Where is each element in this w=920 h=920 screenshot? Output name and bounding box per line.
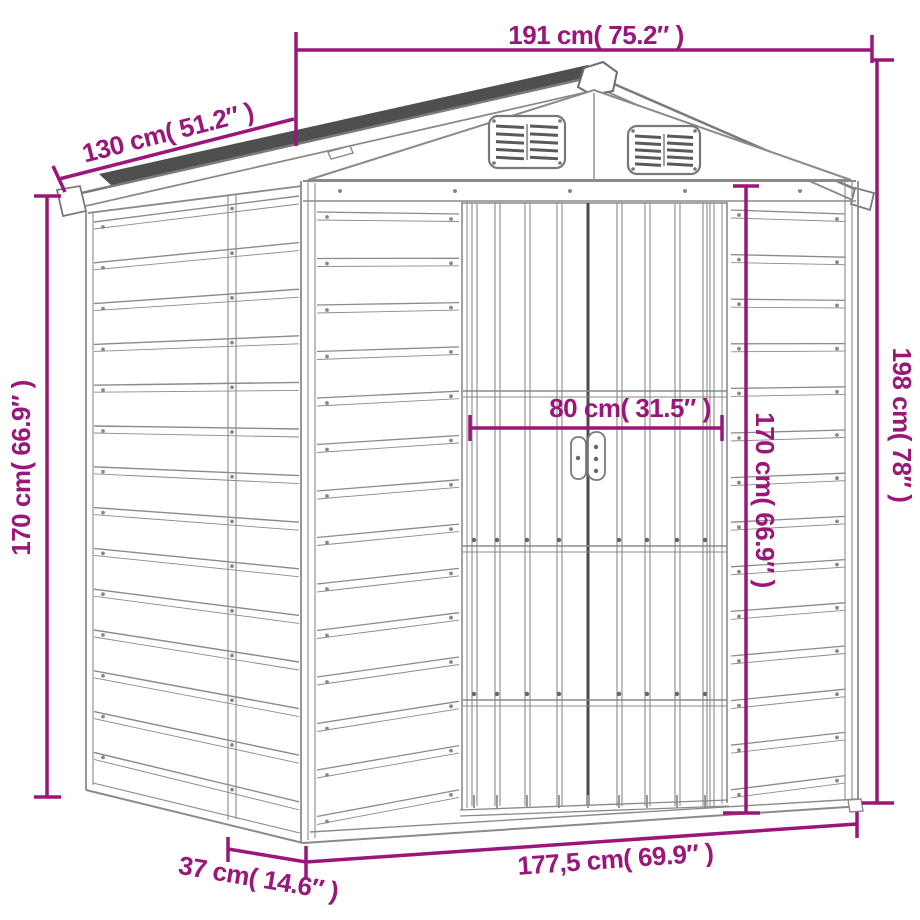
door-corrugation xyxy=(463,203,727,808)
header-screws xyxy=(338,189,802,193)
dim-wall-height-front: 170 cm( 66.9″ ) xyxy=(723,186,780,814)
front-right-panel xyxy=(731,210,845,798)
dim-wall-height-front-label: 170 cm( 66.9″ ) xyxy=(750,412,780,588)
dim-door-width-label: 80 cm( 31.5″ ) xyxy=(549,393,711,423)
dim-base-width: 177,5 cm( 69.9″ ) xyxy=(306,812,857,881)
dim-wall-height-left: 170 cm( 66.9″ ) xyxy=(6,196,61,797)
dim-base-depth: 37 cm( 14.6″ ) xyxy=(176,837,340,906)
dim-total-height-label: 198 cm( 78″ ) xyxy=(887,348,917,503)
roof-right-endcap xyxy=(851,188,874,210)
roof-left-endcap xyxy=(57,186,86,216)
door-handle xyxy=(571,432,605,480)
dim-wall-height-left-label: 170 cm( 66.9″ ) xyxy=(6,380,36,556)
double-doors xyxy=(462,202,727,810)
roof-bracket xyxy=(328,146,353,159)
gable xyxy=(303,90,856,201)
diagram-canvas: 191 cm( 75.2″ ) 130 cm( 51.2″ ) 170 cm( … xyxy=(0,0,920,920)
shed-dimension-diagram: 191 cm( 75.2″ ) 130 cm( 51.2″ ) 170 cm( … xyxy=(0,0,920,920)
dim-base-depth-label: 37 cm( 14.6″ ) xyxy=(176,850,340,906)
base xyxy=(303,799,863,843)
side-wall xyxy=(86,186,303,843)
side-wall-panels xyxy=(94,196,299,810)
dim-total-height: 198 cm( 78″ ) xyxy=(862,60,917,803)
front-left-panel xyxy=(317,212,459,825)
dim-roof-width-label: 191 cm( 75.2″ ) xyxy=(508,20,684,50)
